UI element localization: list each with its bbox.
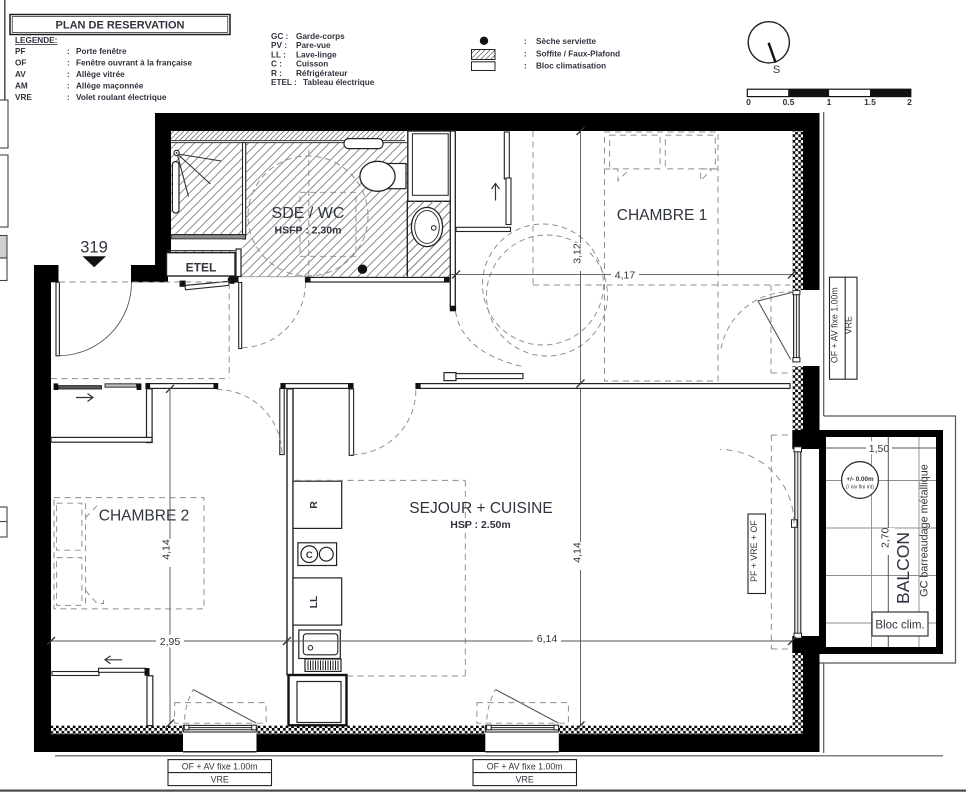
svg-text:AV: AV — [15, 70, 26, 79]
svg-text::: : — [524, 62, 527, 71]
svg-text:LL :: LL : — [271, 50, 286, 59]
svg-text:Bloc climatisation: Bloc climatisation — [536, 62, 606, 71]
svg-text:Garde-corps: Garde-corps — [296, 32, 345, 41]
svg-text:LL: LL — [308, 595, 320, 608]
svg-text:+/- 0.00m: +/- 0.00m — [846, 476, 874, 483]
svg-text:R :: R : — [271, 69, 282, 78]
svg-text:319: 319 — [80, 239, 108, 257]
svg-text:Sèche serviette: Sèche serviette — [536, 37, 597, 46]
svg-text:Soffite / Faux-Plafond: Soffite / Faux-Plafond — [536, 50, 620, 59]
svg-text:CHAMBRE 2: CHAMBRE 2 — [99, 508, 189, 525]
svg-text:VRE: VRE — [844, 316, 854, 334]
svg-text:VRE: VRE — [516, 775, 534, 785]
svg-text:2,70: 2,70 — [879, 527, 891, 548]
svg-text:Réfrigérateur: Réfrigérateur — [296, 69, 348, 78]
svg-text:AM: AM — [15, 82, 28, 91]
svg-text:VRE: VRE — [211, 775, 229, 785]
svg-text:OF: OF — [15, 59, 26, 68]
svg-text::: : — [67, 59, 70, 68]
svg-text:4,14: 4,14 — [572, 542, 584, 563]
svg-text:Pare-vue: Pare-vue — [296, 41, 331, 50]
svg-text:CHAMBRE 1: CHAMBRE 1 — [617, 207, 707, 224]
svg-text:GC :: GC : — [271, 32, 288, 41]
svg-text:0: 0 — [746, 97, 751, 107]
svg-text:S: S — [773, 64, 780, 76]
svg-text:0.5: 0.5 — [783, 97, 795, 107]
svg-text:C :: C : — [271, 60, 282, 69]
svg-text:Tableau électrique: Tableau électrique — [303, 78, 375, 87]
svg-text:SEJOUR + CUISINE: SEJOUR + CUISINE — [409, 500, 552, 517]
svg-text:OF + AV fixe 1.00m: OF + AV fixe 1.00m — [182, 762, 258, 772]
svg-text:PF + VRE + OF: PF + VRE + OF — [749, 520, 759, 582]
svg-text::: : — [67, 47, 70, 56]
svg-text::: : — [67, 70, 70, 79]
svg-text:4,14: 4,14 — [161, 539, 173, 560]
svg-text:VRE: VRE — [15, 93, 32, 102]
svg-text:6,14: 6,14 — [537, 633, 558, 645]
svg-text:HSP : 2.50m: HSP : 2.50m — [450, 519, 511, 531]
svg-text:C: C — [306, 550, 313, 561]
svg-text:3,12: 3,12 — [572, 243, 584, 264]
svg-text:SDE / WC: SDE / WC — [272, 205, 345, 222]
svg-text:LEGENDE:: LEGENDE: — [15, 36, 57, 45]
svg-text:(/ niv fini int): (/ niv fini int) — [846, 485, 874, 491]
svg-text:1.5: 1.5 — [864, 97, 876, 107]
svg-text:Volet roulant électrique: Volet roulant électrique — [76, 93, 167, 102]
svg-text::: : — [524, 37, 527, 46]
svg-text:1,50: 1,50 — [869, 443, 890, 455]
svg-text:2: 2 — [907, 97, 912, 107]
svg-text:Allège maçonnée: Allège maçonnée — [76, 82, 144, 91]
svg-text:PF: PF — [15, 47, 25, 56]
svg-text:R: R — [308, 501, 320, 509]
svg-text:1: 1 — [827, 97, 832, 107]
svg-text:Porte fenêtre: Porte fenêtre — [76, 47, 127, 56]
svg-text:Fenêtre ouvrant à la française: Fenêtre ouvrant à la française — [76, 59, 192, 68]
svg-text:OF + AV fixe 1.00m: OF + AV fixe 1.00m — [830, 287, 840, 363]
svg-text:2,95: 2,95 — [160, 636, 181, 648]
svg-text::: : — [67, 82, 70, 91]
svg-text:Allège vitrée: Allège vitrée — [76, 70, 125, 79]
svg-text:ETEL: ETEL — [186, 261, 217, 275]
svg-text:BALCON: BALCON — [893, 532, 913, 604]
svg-text:GC barreaudage métallique: GC barreaudage métallique — [919, 464, 931, 597]
svg-text::: : — [67, 93, 70, 102]
svg-text:OF + AV fixe 1.00m: OF + AV fixe 1.00m — [487, 762, 563, 772]
svg-text::: : — [524, 50, 527, 59]
svg-text:Cuisson: Cuisson — [296, 60, 328, 69]
svg-text:Bloc clim.: Bloc clim. — [875, 620, 924, 632]
svg-text:PLAN DE RESERVATION: PLAN DE RESERVATION — [56, 19, 185, 31]
svg-text:Lave-linge: Lave-linge — [296, 50, 337, 59]
svg-text:4,17: 4,17 — [615, 270, 636, 282]
svg-text:HSFP : 2.30m: HSFP : 2.30m — [275, 225, 342, 237]
svg-text:PV :: PV : — [271, 41, 287, 50]
svg-text:ETEL :: ETEL : — [271, 78, 297, 87]
